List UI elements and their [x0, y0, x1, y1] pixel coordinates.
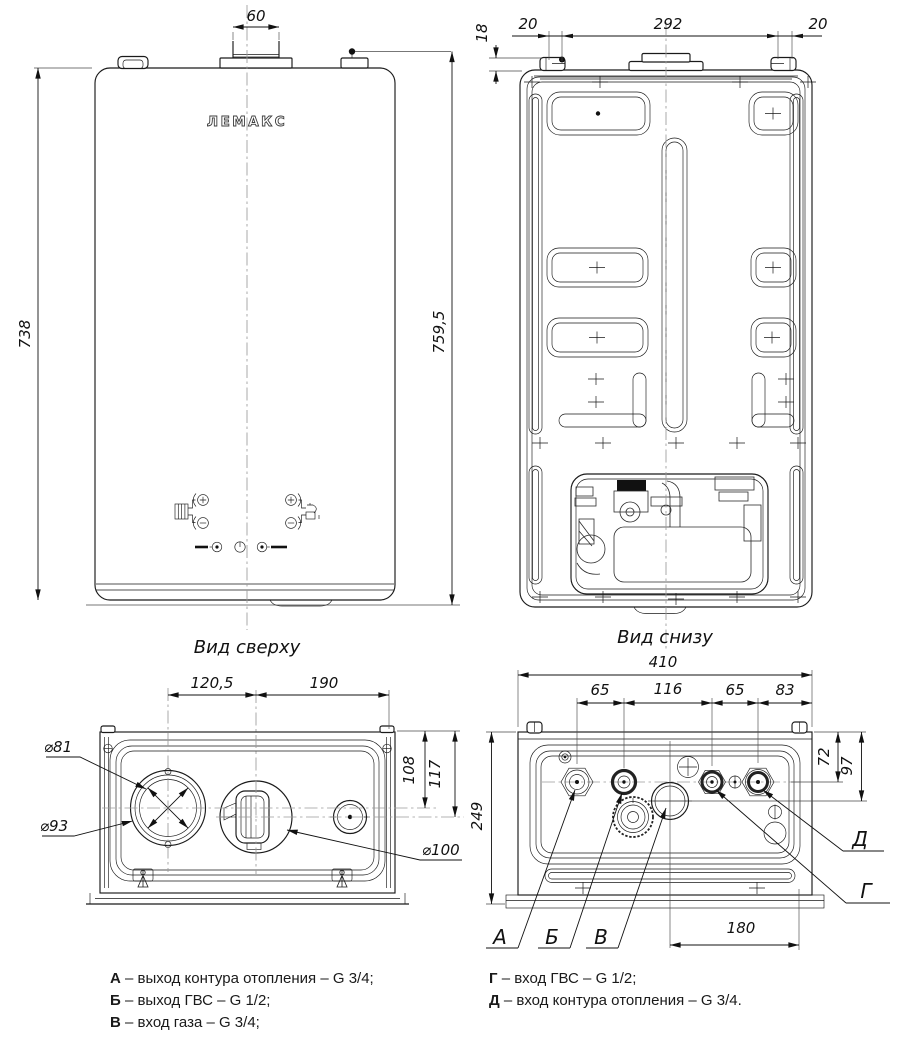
dim-row-depth: 72: [815, 747, 833, 766]
legend-text: – выход ГВС – G 1/2;: [125, 992, 271, 1009]
legend-left-column: А – выход контура отопления – G 3/4; Б –…: [110, 968, 374, 1034]
label-flue-inner-dia: ⌀81: [44, 738, 72, 756]
adjustable-feet: [133, 869, 352, 887]
top-left-tab: [118, 57, 148, 69]
legend-item: А – выход контура отопления – G 3/4;: [110, 968, 374, 990]
corner-screws: [104, 744, 392, 753]
dim-left-offset: 20: [518, 15, 537, 33]
label-flue-outer-dia: ⌀93: [40, 817, 68, 835]
dim-span-gd: 65: [725, 681, 744, 699]
port-label-b: Б: [545, 925, 559, 949]
port-leaders: А Б В Г Д: [486, 790, 890, 949]
bottom-view-dimensions: 410 65 116 65 83 72 97 249 180: [468, 653, 867, 950]
dim-right-offset: 20: [808, 15, 827, 33]
legend-item: В – вход газа – G 3/4;: [110, 1012, 374, 1034]
dim-air-offset: 190: [310, 674, 339, 692]
dim-overall-depth: 249: [468, 802, 486, 831]
top-view: Вид сверху: [40, 637, 464, 904]
legend-key: Д: [489, 992, 500, 1009]
port-label-g: Г: [860, 879, 873, 903]
legend-key: Г: [489, 970, 498, 987]
legend-item: Г – вход ГВС – G 1/2;: [489, 968, 742, 990]
dim-flue-offset: 120,5: [191, 674, 234, 692]
dim-span-ab: 65: [590, 681, 609, 699]
dim-air-depth: 117: [426, 759, 444, 788]
legend-text: – вход контура отопления – G 3/4.: [504, 992, 742, 1009]
dim-gas-offset: 180: [727, 919, 756, 937]
port-g-fitting: [699, 770, 726, 793]
bottom-view: Вид снизу: [468, 627, 890, 950]
flue-pipe: [220, 41, 292, 68]
front-view: ЛЕМАКС: [16, 5, 460, 630]
rear-view: 18 20 292 20: [473, 15, 828, 650]
top-right-valve: [341, 48, 451, 68]
legend-key: В: [110, 1014, 121, 1031]
legend-key: А: [110, 970, 121, 987]
technical-drawing-page: ЛЕМАКС: [0, 0, 918, 1054]
legend-text: – вход ГВС – G 1/2;: [502, 970, 637, 987]
drawing-canvas: ЛЕМАКС: [0, 0, 918, 960]
port-label-d: Д: [851, 827, 868, 851]
brand-logo: ЛЕМАКС: [207, 114, 287, 130]
dim-bracket-span: 292: [654, 15, 683, 33]
label-air-dia: ⌀100: [422, 841, 460, 859]
legend-text: – вход газа – G 3/4;: [125, 1014, 260, 1031]
dim-height-overall: 759,5: [430, 311, 448, 354]
legend-key: Б: [110, 992, 121, 1009]
dim-flue-depth: 108: [400, 756, 418, 785]
dim-span-d-edge: 83: [775, 681, 794, 699]
dim-flue-width: 60: [246, 7, 265, 25]
port-label-v: В: [594, 925, 608, 949]
legend-right-column: Г – вход ГВС – G 1/2; Д – вход контура о…: [489, 968, 742, 1012]
dim-span-bg: 116: [654, 680, 683, 698]
legend-item: Д – вход контура отопления – G 3/4.: [489, 990, 742, 1012]
dim-width: 410: [649, 653, 678, 671]
bottom-view-caption: Вид снизу: [617, 627, 713, 648]
pilot-hole: [678, 757, 699, 778]
legend-item: Б – выход ГВС – G 1/2;: [110, 990, 374, 1012]
dim-height-body: 738: [16, 320, 34, 349]
dim-ledge: 18: [473, 23, 491, 42]
legend-text: – выход контура отопления – G 3/4;: [125, 970, 374, 987]
port-label-a: А: [491, 925, 507, 949]
top-view-caption: Вид сверху: [194, 637, 301, 658]
dim-gas-depth: 97: [838, 756, 856, 776]
